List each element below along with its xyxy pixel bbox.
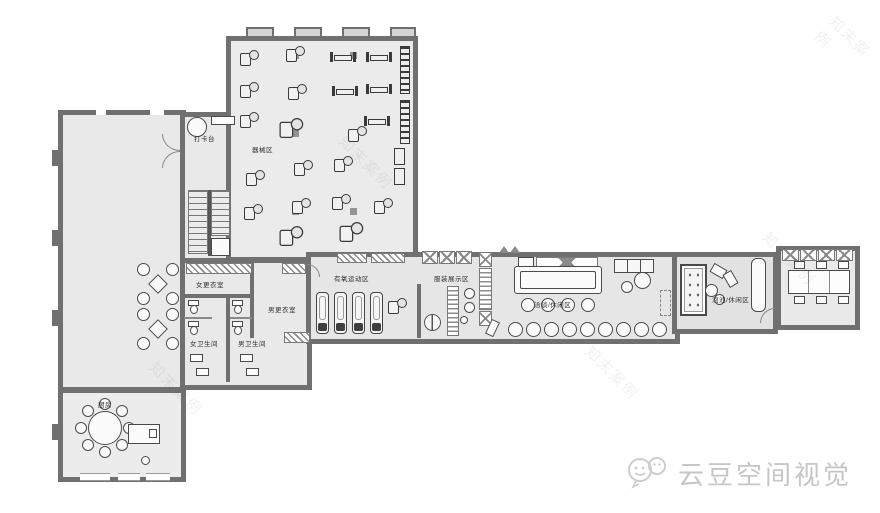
- stool-icon: [526, 322, 541, 337]
- chair-icon: [116, 405, 128, 417]
- women-locker-label: 女更衣室: [196, 283, 224, 290]
- gym-label: 器械区: [252, 148, 273, 155]
- chair-icon: [166, 292, 179, 305]
- wall-opening: [96, 110, 106, 115]
- sink-counter: [190, 354, 203, 362]
- lounge-label: 洽谈/休闲区: [534, 303, 571, 310]
- stool-icon: [598, 322, 613, 337]
- gym-rack-icon: [400, 46, 410, 94]
- gym-equipment-icon: [374, 198, 394, 214]
- mirror-stand-icon: [424, 314, 441, 331]
- locker-row: [282, 263, 306, 274]
- gym-equipment-icon: [280, 118, 305, 138]
- stool-icon: [634, 322, 649, 337]
- chair-icon: [137, 263, 150, 276]
- bar-counter-top: [520, 271, 596, 289]
- sink-counter: [246, 368, 259, 376]
- partition-wall: [417, 284, 421, 338]
- stair-landing: [211, 238, 230, 256]
- stool-icon: [652, 322, 667, 337]
- treadmill-icon: [316, 292, 329, 334]
- chair-icon: [137, 337, 150, 350]
- locker-row: [337, 253, 367, 263]
- stool-icon: [580, 322, 595, 337]
- window: [80, 473, 110, 481]
- wall-opening: [150, 110, 164, 115]
- chair-icon: [838, 296, 849, 304]
- chair-icon: [99, 446, 111, 458]
- chair-icon: [816, 296, 827, 304]
- chair-icon: [166, 337, 179, 350]
- display-rack: [447, 286, 459, 336]
- shelf-column: [479, 268, 492, 310]
- display-label: 服装展示区: [434, 277, 469, 284]
- stool-icon: [521, 298, 535, 312]
- cardio-label: 有氧运动区: [334, 277, 369, 284]
- sofa-icon: [614, 259, 654, 273]
- gym-equipment-icon: [340, 222, 365, 242]
- hanger-icon: [510, 246, 520, 253]
- stool-icon: [616, 322, 631, 337]
- column-x-icon: [479, 252, 492, 267]
- gym-bench-icon: [394, 148, 405, 165]
- mat-icon: [751, 258, 766, 312]
- round-table-icon: [634, 272, 651, 289]
- gym-equipment-icon: [286, 46, 306, 62]
- chair-icon: [166, 263, 179, 276]
- locker-row: [186, 263, 252, 274]
- chair-icon: [464, 288, 475, 299]
- chair-icon: [75, 422, 87, 434]
- gym-bench-icon: [332, 86, 358, 96]
- chair-icon: [166, 308, 179, 321]
- gym-equipment-icon: [240, 82, 260, 98]
- gym-equipment-icon: [244, 204, 264, 220]
- partition-wall: [226, 296, 230, 382]
- stool-icon: [141, 456, 150, 465]
- chair-icon: [460, 316, 468, 324]
- screen-partition: [660, 290, 671, 316]
- toilet-icon: [232, 321, 243, 335]
- stool-icon: [562, 322, 577, 337]
- gym-equipment-icon: [332, 194, 352, 210]
- checkin-counter: [211, 116, 235, 125]
- gym-equipment-icon: [388, 298, 408, 314]
- chair-icon: [116, 439, 128, 451]
- toilet-icon: [232, 300, 243, 314]
- partition-wall: [184, 294, 254, 298]
- checkin-label: 打卡台: [194, 137, 215, 144]
- gym-bench-icon: [366, 52, 392, 62]
- men-wc-label: 男卫生间: [238, 342, 266, 349]
- treadmill-icon: [370, 292, 383, 334]
- treadmill-icon: [334, 292, 347, 334]
- gym-equipment-icon: [294, 160, 314, 176]
- toilet-icon: [188, 321, 199, 335]
- toilet-icon: [188, 300, 199, 314]
- gym-equipment-icon: [288, 84, 308, 100]
- gym-equipment-icon: [240, 112, 260, 128]
- chair-icon: [82, 439, 94, 451]
- kitchen-label: 厨房: [98, 403, 112, 410]
- wall-pillar: [52, 230, 58, 246]
- stall-partition: [184, 317, 212, 319]
- chair-icon: [816, 261, 827, 269]
- pool-tub-icon: [680, 264, 707, 316]
- stair-flight: [188, 190, 208, 254]
- window-x-icon: [836, 249, 853, 261]
- gym-rack-icon: [400, 100, 410, 144]
- chair-icon: [464, 302, 475, 313]
- locker-row: [284, 332, 310, 343]
- chair-icon: [794, 296, 805, 304]
- women-wc-label: 女卫生间: [190, 342, 218, 349]
- window-x-icon: [439, 251, 455, 264]
- stool-icon: [581, 298, 595, 312]
- gym-equipment-icon: [240, 50, 260, 66]
- gym-bench-icon: [330, 52, 356, 62]
- men-locker-label: 男更衣室: [268, 308, 296, 315]
- chair-icon: [137, 292, 150, 305]
- window: [118, 473, 140, 481]
- sink-counter: [196, 368, 209, 376]
- treadmill-icon: [352, 292, 365, 334]
- stall-partition: [230, 317, 252, 319]
- window: [146, 473, 170, 481]
- wall-pillar: [52, 310, 58, 326]
- sink-counter: [240, 354, 253, 362]
- chair-icon: [137, 308, 150, 321]
- wall-pillar: [52, 424, 58, 440]
- floor-plan: 打卡台 器械区 女更衣室 男更衣室: [0, 0, 880, 513]
- pool-lounge-label: 泡池/休闲区: [712, 298, 749, 305]
- hanger-icon: [499, 246, 509, 253]
- gym-bench-icon: [366, 84, 392, 94]
- diagonal-watermark: 知末案例: [581, 341, 644, 404]
- gym-equipment-icon: [292, 198, 312, 214]
- stair-flight: [211, 190, 230, 236]
- chair-icon: [838, 261, 849, 269]
- checkin-stool: [187, 117, 207, 137]
- left-hall-room: [58, 110, 186, 392]
- wall-pillar: [52, 150, 58, 166]
- window-x-icon: [456, 251, 472, 264]
- locker-row: [371, 253, 405, 263]
- sink-icon: [149, 429, 157, 438]
- brand-watermark: 云豆空间视觉: [626, 452, 852, 495]
- kitchen-room: [58, 388, 186, 482]
- chair-icon: [621, 281, 633, 293]
- brand-logo-icon: [626, 452, 672, 495]
- gym-bench-icon: [364, 116, 390, 126]
- chair-icon: [82, 405, 94, 417]
- window-x-icon: [818, 249, 835, 261]
- stool-icon: [508, 322, 523, 337]
- brand-watermark-text: 云豆空间视觉: [678, 455, 852, 492]
- gym-equipment-icon: [280, 226, 305, 246]
- diagonal-watermark: 知末案例: [810, 11, 880, 87]
- window-x-icon: [422, 251, 438, 264]
- gym-equipment-icon: [246, 170, 266, 186]
- stool-icon: [544, 322, 559, 337]
